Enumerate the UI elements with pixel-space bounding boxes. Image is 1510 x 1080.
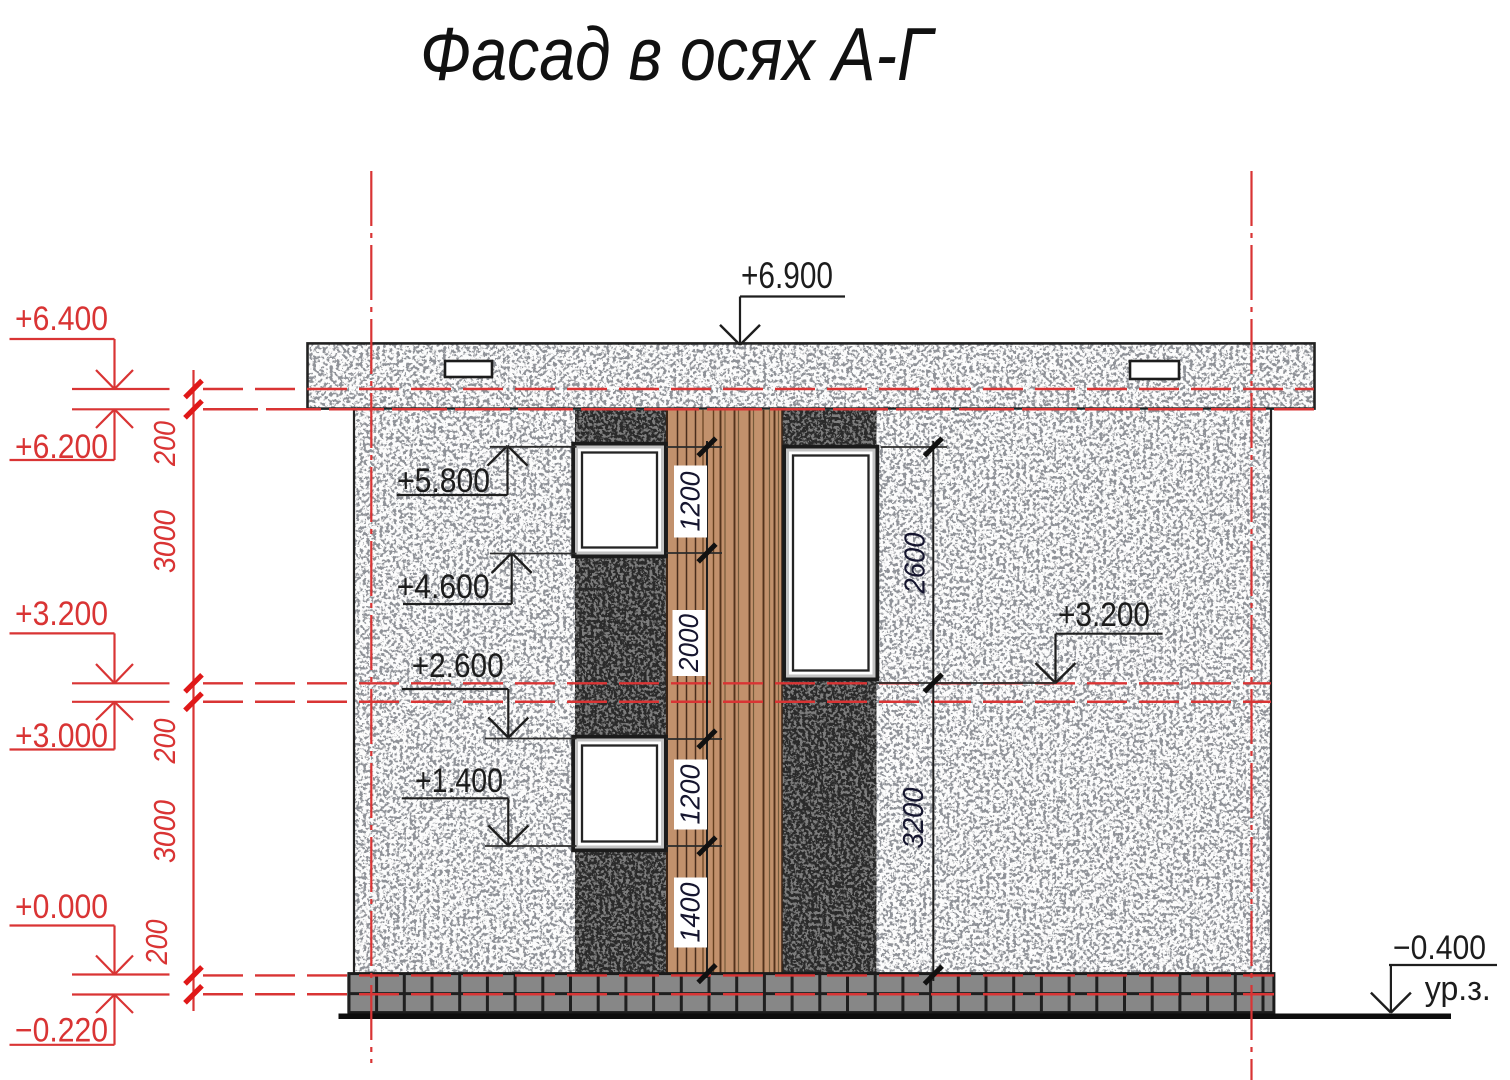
svg-text:1200: 1200 bbox=[675, 764, 706, 824]
svg-text:3200: 3200 bbox=[898, 788, 930, 849]
svg-text:+3.000: +3.000 bbox=[15, 717, 108, 755]
svg-text:3000: 3000 bbox=[147, 800, 182, 863]
svg-text:+3.200: +3.200 bbox=[15, 595, 108, 633]
svg-text:−0.220: −0.220 bbox=[15, 1012, 108, 1050]
svg-text:+2.600: +2.600 bbox=[412, 647, 504, 685]
svg-text:+4.600: +4.600 bbox=[397, 568, 490, 606]
svg-text:1400: 1400 bbox=[675, 882, 706, 942]
svg-text:200: 200 bbox=[147, 421, 182, 467]
svg-text:+6.400: +6.400 bbox=[15, 300, 108, 338]
svg-text:−0.400: −0.400 bbox=[1393, 929, 1486, 967]
svg-text:+3.200: +3.200 bbox=[1058, 596, 1150, 634]
svg-text:+1.400: +1.400 bbox=[415, 762, 503, 800]
svg-text:1200: 1200 bbox=[675, 471, 706, 531]
svg-text:+0.000: +0.000 bbox=[15, 888, 108, 926]
svg-text:3000: 3000 bbox=[147, 510, 182, 573]
svg-text:2600: 2600 bbox=[900, 533, 932, 595]
svg-text:+6.900: +6.900 bbox=[741, 255, 833, 296]
svg-text:ур.з.: ур.з. bbox=[1425, 970, 1491, 1008]
svg-text:Фасад в осях А-Г: Фасад в осях А-Г bbox=[420, 12, 936, 96]
svg-text:2000: 2000 bbox=[673, 614, 704, 673]
svg-text:+6.200: +6.200 bbox=[15, 428, 108, 466]
svg-text:+5.800: +5.800 bbox=[397, 462, 490, 500]
svg-text:200: 200 bbox=[139, 920, 174, 966]
svg-text:200: 200 bbox=[147, 719, 182, 765]
